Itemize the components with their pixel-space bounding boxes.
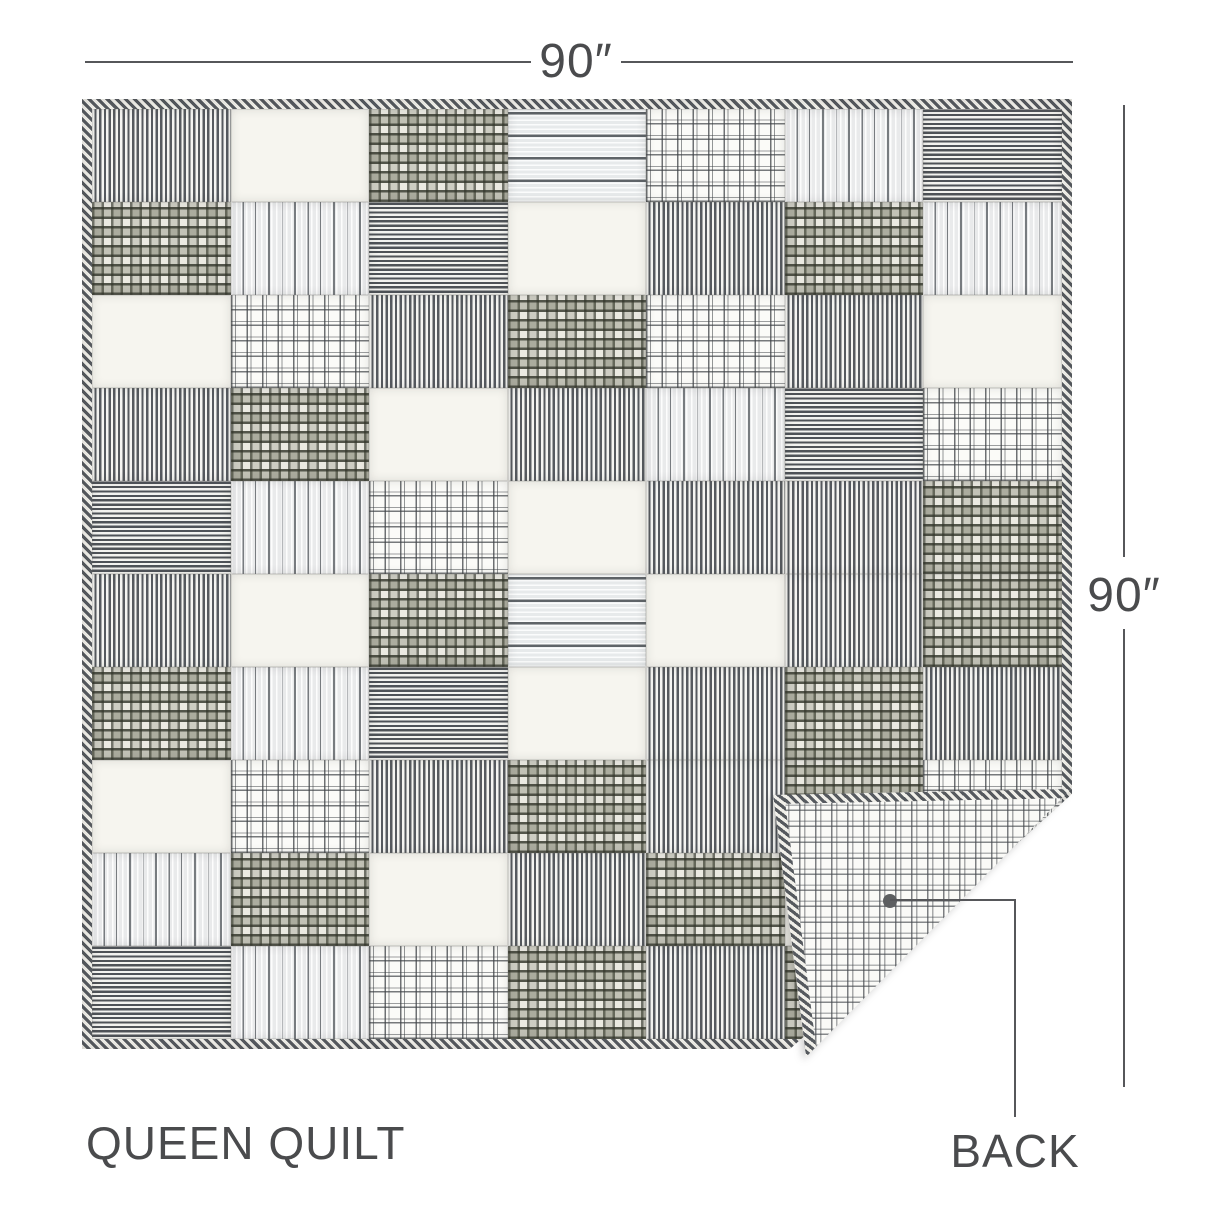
quilt-patch-r7c5 xyxy=(646,667,785,760)
quilt-patch-r5c3 xyxy=(369,481,508,574)
quilt-patch-r2c3 xyxy=(369,202,508,295)
product-name-label: QUEEN QUILT xyxy=(86,1116,405,1170)
quilt-patch-r5c7 xyxy=(923,481,1062,574)
quilt-patch-r2c4 xyxy=(508,202,647,295)
quilt-patch-r4c6 xyxy=(785,388,924,481)
quilt-patch-r8c4 xyxy=(508,760,647,853)
quilt-patch-r7c6 xyxy=(785,667,924,760)
folded-corner xyxy=(767,783,1077,1163)
quilt-patch-r2c2 xyxy=(231,202,370,295)
quilt-patch-r10c5 xyxy=(646,946,785,1039)
quilt-patch-r7c1 xyxy=(92,667,231,760)
quilt-patch-r4c5 xyxy=(646,388,785,481)
quilt-patch-r1c5 xyxy=(646,109,785,202)
quilt-patch-r3c5 xyxy=(646,295,785,388)
quilt-patch-r6c1 xyxy=(92,574,231,667)
back-leader-line-horizontal xyxy=(890,899,1016,901)
quilt-patch-r1c1 xyxy=(92,109,231,202)
quilt-patch-r10c3 xyxy=(369,946,508,1039)
flap-binding-left xyxy=(773,793,817,1058)
top-dimension-line-right xyxy=(621,61,1073,63)
quilt-patch-r2c7 xyxy=(923,202,1062,295)
quilt-patch-r6c6 xyxy=(785,574,924,667)
quilt-patch-r1c2 xyxy=(231,109,370,202)
product-dimension-diagram: 90″ 90″ QUEEN QUILT BACK xyxy=(0,0,1214,1214)
quilt-patch-r3c7 xyxy=(923,295,1062,388)
quilt-patch-r3c1 xyxy=(92,295,231,388)
quilt-patch-r7c4 xyxy=(508,667,647,760)
quilt-patch-r5c4 xyxy=(508,481,647,574)
quilt-patch-r6c5 xyxy=(646,574,785,667)
quilt-image xyxy=(82,99,1072,1049)
quilt-patch-r9c2 xyxy=(231,853,370,946)
quilt-patch-r9c1 xyxy=(92,853,231,946)
quilt-patch-r1c4 xyxy=(508,109,647,202)
quilt-patch-r10c2 xyxy=(231,946,370,1039)
quilt-patch-r10c4 xyxy=(508,946,647,1039)
quilt-patch-r5c2 xyxy=(231,481,370,574)
quilt-patch-r7c3 xyxy=(369,667,508,760)
height-dimension-label: 90″ xyxy=(1079,568,1169,623)
quilt-patch-r10c1 xyxy=(92,946,231,1039)
quilt-patch-r3c2 xyxy=(231,295,370,388)
quilt-back-flap xyxy=(767,783,1077,1163)
quilt-patch-r9c3 xyxy=(369,853,508,946)
quilt-patch-r9c5 xyxy=(646,853,785,946)
top-dimension-line-left xyxy=(85,61,531,63)
right-dimension-line-upper xyxy=(1123,105,1125,557)
back-label: BACK xyxy=(950,1124,1080,1178)
quilt-patch-r7c2 xyxy=(231,667,370,760)
quilt-patch-r8c2 xyxy=(231,760,370,853)
quilt-patch-r2c5 xyxy=(646,202,785,295)
quilt-patch-r4c3 xyxy=(369,388,508,481)
quilt-patch-r1c6 xyxy=(785,109,924,202)
quilt-patch-r4c7 xyxy=(923,388,1062,481)
quilt-patch-r5c1 xyxy=(92,481,231,574)
back-leader-line-vertical xyxy=(1014,899,1016,1117)
quilt-patch-r6c4 xyxy=(508,574,647,667)
back-callout-dot xyxy=(883,894,897,908)
quilt-patch-r2c1 xyxy=(92,202,231,295)
right-dimension-line-lower xyxy=(1123,629,1125,1087)
quilt-patch-r4c4 xyxy=(508,388,647,481)
width-dimension-label: 90″ xyxy=(531,34,621,89)
quilt-patch-r4c2 xyxy=(231,388,370,481)
quilt-patch-r5c6 xyxy=(785,481,924,574)
quilt-patch-r3c3 xyxy=(369,295,508,388)
quilt-patch-r4c1 xyxy=(92,388,231,481)
quilt-patch-r1c7 xyxy=(923,109,1062,202)
quilt-patch-r6c7 xyxy=(923,574,1062,667)
quilt-patch-r8c1 xyxy=(92,760,231,853)
quilt-patch-r5c5 xyxy=(646,481,785,574)
quilt-patch-r9c4 xyxy=(508,853,647,946)
quilt-patch-r1c3 xyxy=(369,109,508,202)
quilt-patch-r7c7 xyxy=(923,667,1062,760)
quilt-patch-r8c5 xyxy=(646,760,785,853)
quilt-patch-r6c2 xyxy=(231,574,370,667)
quilt-patch-r2c6 xyxy=(785,202,924,295)
flap-binding-top xyxy=(773,787,1073,804)
quilt-patch-r8c3 xyxy=(369,760,508,853)
quilt-patch-r3c4 xyxy=(508,295,647,388)
quilt-patch-r3c6 xyxy=(785,295,924,388)
quilt-patch-r6c3 xyxy=(369,574,508,667)
